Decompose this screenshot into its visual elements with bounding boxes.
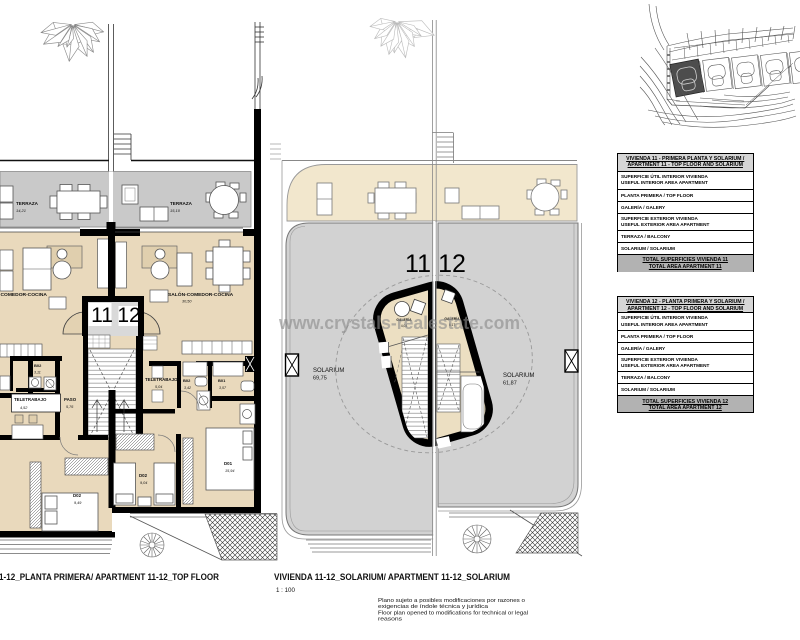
svg-text:TERRAZA: TERRAZA (16, 201, 39, 206)
svg-text:TELETRABAJO: TELETRABAJO (14, 397, 47, 402)
svg-text:Plano sujeto a posibles modifi: Plano sujeto a posibles modificaciones p… (378, 598, 525, 604)
svg-text:VIVIENDA 11-12_SOLARIUM/ APART: VIVIENDA 11-12_SOLARIUM/ APARTMENT 11-12… (274, 572, 510, 583)
svg-text:12: 12 (117, 304, 140, 327)
svg-text:30,50: 30,50 (182, 300, 192, 304)
svg-text:9,49: 9,49 (74, 501, 82, 505)
svg-text:B02: B02 (34, 363, 42, 368)
svg-text:SOLARIUM: SOLARIUM (313, 368, 344, 374)
svg-text:COMEDOR-COCINA: COMEDOR-COCINA (1, 292, 48, 298)
svg-text:1 : 100: 1 : 100 (276, 587, 295, 594)
svg-text:4,52: 4,52 (20, 406, 28, 410)
svg-text:D01: D01 (224, 461, 233, 466)
svg-text:15,94: 15,94 (225, 469, 235, 473)
svg-text:11-12_PLANTA PRIMERA/ APARTMEN: 11-12_PLANTA PRIMERA/ APARTMENT 11-12_TO… (0, 572, 219, 583)
svg-text:B01: B01 (218, 378, 226, 383)
svg-text:69,75: 69,75 (313, 376, 327, 382)
svg-text:www.crystals-realestate.com: www.crystals-realestate.com (278, 312, 520, 333)
svg-text:TELETRABAJO: TELETRABAJO (145, 377, 178, 382)
svg-text:11: 11 (405, 250, 431, 278)
svg-text:5,76: 5,76 (66, 405, 74, 409)
svg-text:61,87: 61,87 (503, 381, 517, 387)
svg-text:D02: D02 (73, 493, 82, 498)
svg-text:3,11: 3,11 (34, 371, 41, 375)
svg-text:3,57: 3,57 (219, 386, 227, 390)
svg-text:5,04: 5,04 (155, 385, 162, 389)
svg-text:TERRAZA: TERRAZA (170, 201, 193, 206)
svg-text:9,04: 9,04 (140, 481, 147, 485)
svg-text:3,42: 3,42 (184, 386, 191, 390)
svg-text:PASO: PASO (64, 397, 77, 402)
svg-text:11: 11 (91, 304, 113, 327)
svg-text:D02: D02 (139, 473, 148, 478)
svg-text:SOLARIUM: SOLARIUM (503, 373, 534, 379)
svg-text:reasons: reasons (378, 617, 402, 623)
svg-text:B02: B02 (183, 378, 191, 383)
svg-text:12: 12 (438, 250, 466, 278)
svg-text:exigencias de índole técnica y: exigencias de índole técnica y jurídica (378, 604, 488, 610)
svg-text:15,10: 15,10 (170, 208, 181, 213)
svg-text:14,21: 14,21 (16, 208, 26, 213)
svg-text:Floor plan opened to modificat: Floor plan opened to modifications for t… (378, 610, 528, 616)
